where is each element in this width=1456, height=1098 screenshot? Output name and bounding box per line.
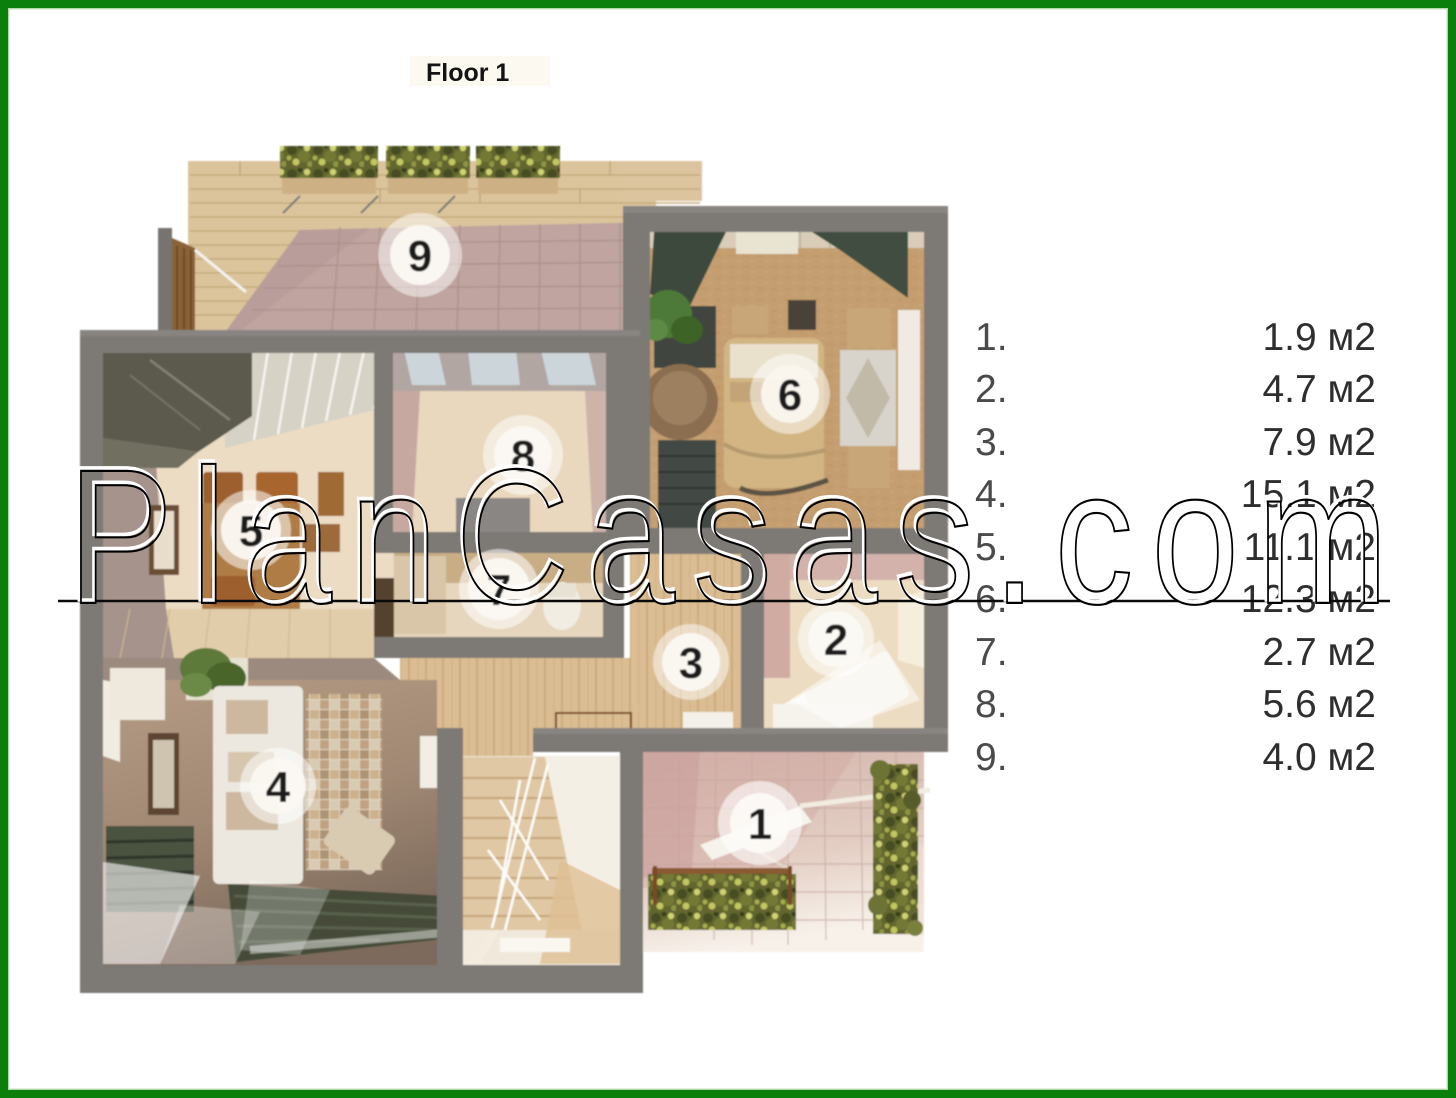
- svg-text:1: 1: [748, 800, 772, 849]
- svg-text:9: 9: [408, 232, 432, 281]
- svg-text:4.0 м2: 4.0 м2: [1262, 736, 1376, 779]
- svg-text:1.: 1.: [975, 316, 1008, 359]
- svg-text:3: 3: [679, 639, 703, 688]
- svg-text:2.: 2.: [975, 368, 1008, 411]
- svg-text:9.: 9.: [975, 736, 1008, 779]
- svg-text:6: 6: [778, 371, 802, 420]
- svg-text:4: 4: [266, 763, 291, 812]
- svg-text:PlanCasas.com: PlanCasas.com: [68, 430, 1388, 644]
- svg-text:1.9 м2: 1.9 м2: [1262, 316, 1376, 359]
- svg-text:8.: 8.: [975, 683, 1008, 726]
- svg-text:Floor 1: Floor 1: [426, 59, 509, 87]
- svg-text:5.6 м2: 5.6 м2: [1262, 683, 1376, 726]
- svg-text:4.7 м2: 4.7 м2: [1262, 368, 1376, 411]
